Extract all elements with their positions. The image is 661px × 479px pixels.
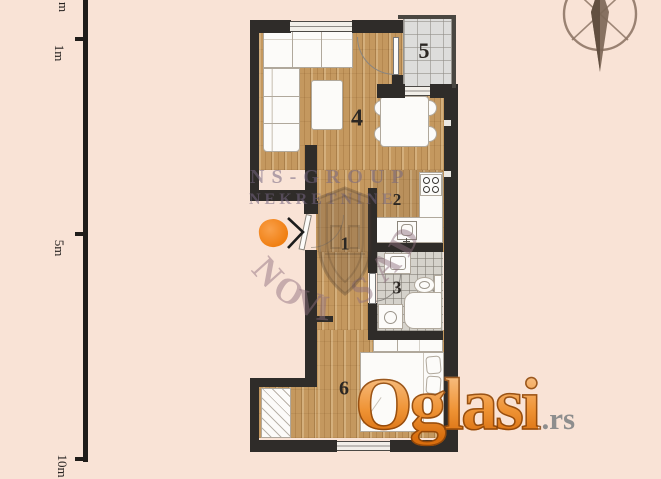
terrace-railing-right [452, 15, 456, 88]
stove-burner [423, 186, 430, 193]
wall-terrace-pillar [377, 84, 405, 98]
terrace-railing-top [398, 15, 456, 19]
room-label-5: 5 [419, 38, 430, 64]
toilet-bowl-inner [419, 281, 430, 289]
wall-top-right [352, 20, 403, 33]
terrace-door-leaf [393, 37, 399, 75]
chevron-right-icon [285, 215, 307, 251]
site-watermark: Oglasi.rs [355, 372, 575, 439]
stove-burner [432, 186, 439, 193]
sofa-left-section [263, 68, 300, 152]
ruler-label-1m: 1m [51, 45, 67, 62]
wall-bottom-left [250, 440, 337, 452]
wall-joint-notch [444, 120, 451, 126]
compass-rose-icon [556, 0, 644, 78]
ruler-tick-1m [75, 37, 84, 41]
ruler-label-5m: 5m [51, 240, 67, 257]
ruler-label-0: m [55, 2, 71, 12]
ruler-tick-5m [75, 232, 84, 236]
stove-burner [423, 177, 430, 184]
ruler-tick-10m [75, 457, 84, 461]
site-watermark-name: Oglasi [355, 364, 538, 446]
stove-burner [432, 177, 439, 184]
wardrobe [261, 388, 291, 438]
shower-tub [404, 292, 442, 329]
washing-machine-door [384, 311, 397, 324]
site-watermark-tld: .rs [541, 401, 575, 436]
wall-bath-bottom [368, 331, 443, 340]
window-terrace [405, 86, 430, 96]
room-label-6: 6 [339, 378, 349, 401]
scale-ruler [83, 0, 88, 462]
dining-table [380, 96, 429, 147]
room-label-2: 2 [393, 190, 402, 210]
ruler-label-10m: 10m [54, 454, 70, 477]
coffee-table [311, 80, 343, 130]
wall-joint-notch [444, 171, 451, 177]
floor-plan-image: m 1m 5m 10m [0, 0, 661, 479]
window-top [290, 21, 352, 32]
sofa-top-section [263, 29, 353, 68]
room-label-4: 4 [351, 106, 363, 133]
wall-balcony-door-jamb [392, 75, 403, 84]
wall-step [250, 378, 317, 387]
room-label-1: 1 [341, 234, 350, 255]
room-label-3: 3 [393, 278, 402, 299]
